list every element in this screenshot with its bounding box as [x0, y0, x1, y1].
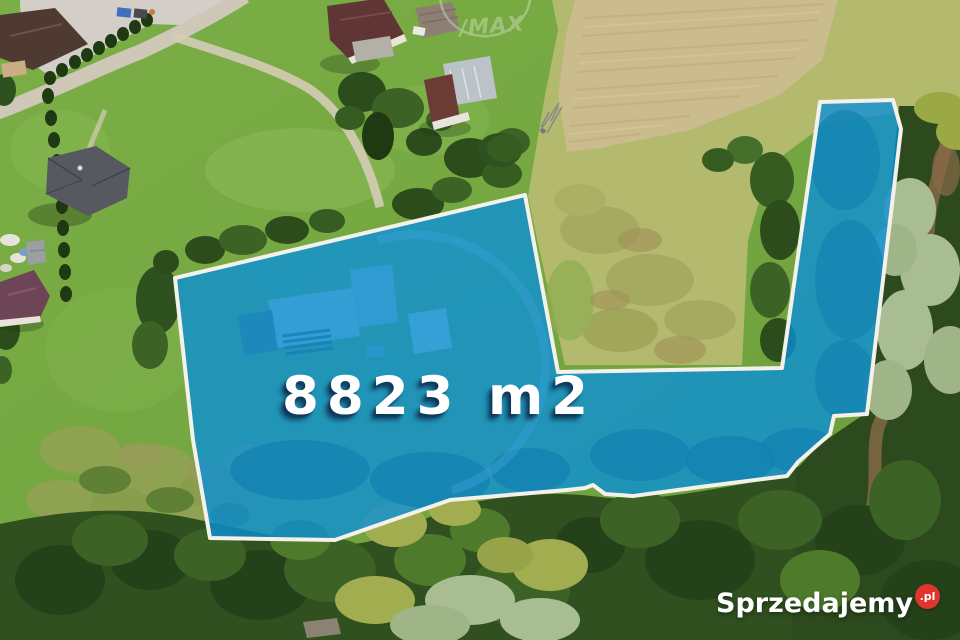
sprzedajemy-wordmark: Sprzedajemy — [716, 590, 913, 617]
plot-area-label: 8823 m2 — [282, 366, 596, 427]
pl-badge: .pl — [915, 584, 940, 609]
listing-photo: /MAX 8823 m2 Sprzedajemy .pl — [0, 0, 960, 640]
sprzedajemy-watermark: Sprzedajemy .pl — [716, 584, 940, 617]
remax-watermark-text: /MAX — [456, 11, 526, 40]
aerial-photo: /MAX — [0, 0, 960, 640]
